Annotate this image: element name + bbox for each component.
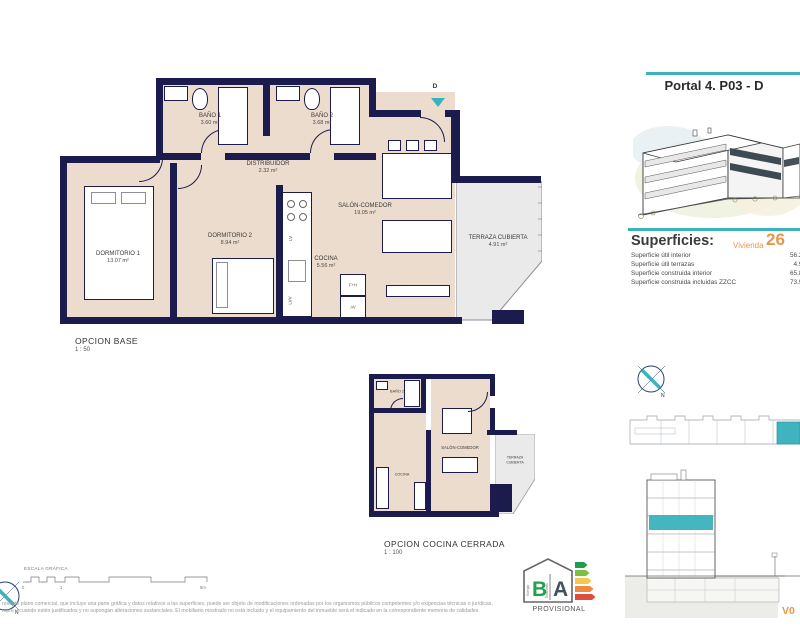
room-label: COCINA: [395, 472, 410, 477]
appliance-unit: AV: [340, 296, 366, 318]
superficies-row: Superficie útil interior56.21: [631, 251, 800, 260]
hob-burner: [287, 200, 295, 208]
sink: [164, 86, 188, 101]
entrance-arrow-icon: [431, 98, 445, 107]
scale-tick: 0: [22, 585, 24, 590]
compass-icon: N: [632, 362, 672, 402]
plan-sheet: D LV LVV F+H AV: [0, 0, 800, 640]
version-tag: V0: [782, 605, 795, 617]
appliance-label: LVV: [288, 296, 293, 304]
main-floor-plan: D LV LVV F+H AV: [60, 70, 560, 340]
chair: [388, 140, 401, 151]
kitchen-counter: [282, 192, 312, 317]
sofa: [382, 220, 452, 253]
room-label: DORMITORIO 28.94 m²: [208, 232, 252, 248]
appliance-label: F+H: [341, 283, 365, 288]
wall-segment: [369, 511, 499, 517]
kitchen-sink: [288, 260, 306, 282]
svg-text:Emisiones: Emisiones: [545, 583, 549, 598]
chair: [424, 140, 437, 151]
wall-segment: [60, 317, 462, 324]
wall-segment: [426, 430, 431, 512]
room-label: DORMITORIO 113.07 m²: [96, 250, 140, 266]
building-section: [625, 468, 800, 618]
wall-segment: [370, 374, 495, 379]
pillow: [121, 192, 146, 204]
room-label: TERRAZA CUBIERTA4.91 m²: [468, 234, 527, 250]
scale-bar: [22, 574, 212, 586]
wall-segment: [60, 156, 67, 324]
hob-burner: [299, 213, 307, 221]
small-plan-scale: 1 : 100: [384, 550, 402, 556]
room-label: TERRAZA CUBIERTA: [500, 455, 530, 464]
room-label: BAÑO 13.60 m²: [199, 112, 221, 128]
bathtub: [404, 380, 420, 407]
wall-segment: [225, 153, 310, 160]
appliance-label: LV: [288, 236, 293, 241]
wall-segment: [487, 430, 517, 435]
wall-segment: [369, 374, 374, 516]
key-plan: [627, 410, 800, 450]
wall-segment: [170, 163, 177, 317]
energy-rating-icon: Energía B Emisiones A: [520, 556, 596, 604]
chair: [406, 140, 419, 151]
toilet: [192, 88, 208, 110]
vivienda-label: Vivienda: [733, 241, 764, 250]
svg-text:N: N: [661, 393, 665, 399]
appliance-unit: [414, 482, 426, 510]
provisional-label: PROVISIONAL: [524, 606, 594, 613]
toilet: [304, 88, 320, 110]
appliance-label: AV: [341, 305, 365, 310]
room-label: BAÑO 23.68 m²: [311, 112, 333, 128]
superficies-heading: Superficies:: [631, 233, 714, 249]
scale-bar-label: ESCALA GRÁFICA: [24, 566, 68, 571]
wall-segment: [421, 374, 426, 413]
pillow: [216, 262, 228, 308]
superficies-row: Superficie útil terrazas4.91: [631, 260, 800, 269]
room-label: DISTRIBUIDOR2.32 m²: [246, 160, 289, 176]
superficies-table: Superficie útil interior56.21 Superficie…: [631, 251, 800, 287]
superficies-row: Superficie construida incluidas ZZCC73.9…: [631, 278, 800, 287]
entrance-label: D: [426, 83, 444, 90]
building-illustration: [633, 103, 800, 228]
scale-tick: 1: [60, 585, 62, 590]
svg-text:Energía: Energía: [526, 585, 530, 596]
room-label: SALÓN-COMEDOR: [441, 445, 478, 451]
room-label: COCINA5.56 m²: [314, 255, 337, 271]
kitchen-counter: [376, 467, 389, 509]
wall-segment: [490, 374, 495, 396]
sink: [276, 86, 300, 101]
bathtub: [218, 87, 248, 145]
wall-segment: [156, 78, 163, 158]
wall-segment: [490, 484, 512, 512]
wall-segment: [451, 110, 460, 183]
tv-bench: [386, 285, 450, 297]
pillow: [91, 192, 116, 204]
wall-segment: [451, 176, 541, 183]
fridge-oven-unit: F+H: [340, 274, 366, 296]
room-label: BAÑO 2: [390, 389, 404, 394]
sink: [376, 381, 388, 390]
hob-burner: [287, 213, 295, 221]
wall-segment: [263, 78, 270, 136]
terrace-area: [456, 181, 542, 321]
vivienda-number: 26: [766, 230, 785, 250]
wall-segment: [369, 110, 421, 117]
main-plan-scale: 1 : 50: [75, 347, 90, 353]
hob-burner: [299, 200, 307, 208]
wall-segment: [334, 153, 376, 160]
main-plan-caption: OPCION BASE: [75, 336, 138, 346]
dining-table: [382, 153, 452, 199]
room-label: SALÓN-COMEDOR19.05 m²: [338, 202, 392, 218]
wall-segment: [492, 310, 524, 324]
portal-title: Portal 4. P03 - D: [628, 78, 800, 93]
svg-text:A: A: [553, 578, 568, 601]
bathtub: [330, 87, 360, 145]
sofa: [442, 457, 478, 473]
divider-line: [646, 72, 800, 75]
scale-tick: 5m: [200, 585, 206, 590]
superficies-row: Superficie construida interior65.88: [631, 269, 800, 278]
small-plan-caption: OPCION COCINA CERRADA: [384, 539, 505, 549]
small-floor-plan: BAÑO 2 SALÓN-COMEDOR COCINA TERRAZA CUBI…: [362, 372, 552, 538]
